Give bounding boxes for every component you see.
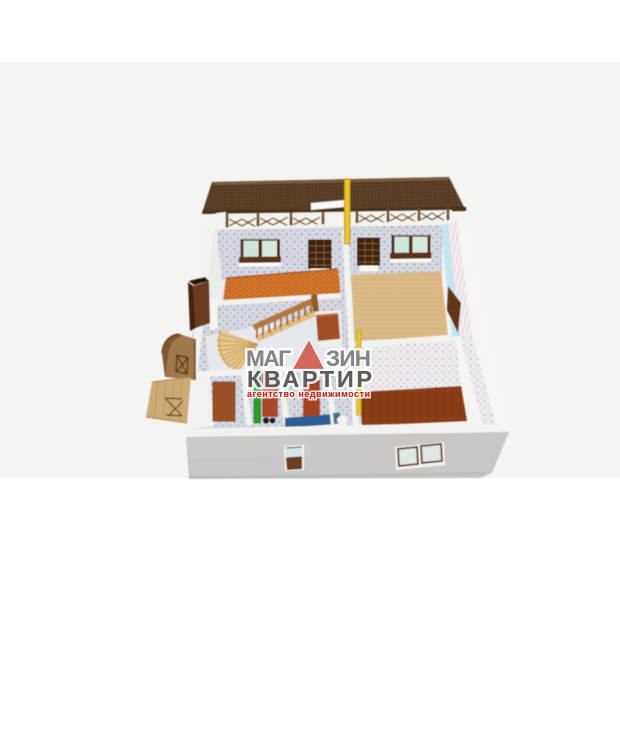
svg-text:агентство недвижимости: агентство недвижимости [247,389,370,399]
